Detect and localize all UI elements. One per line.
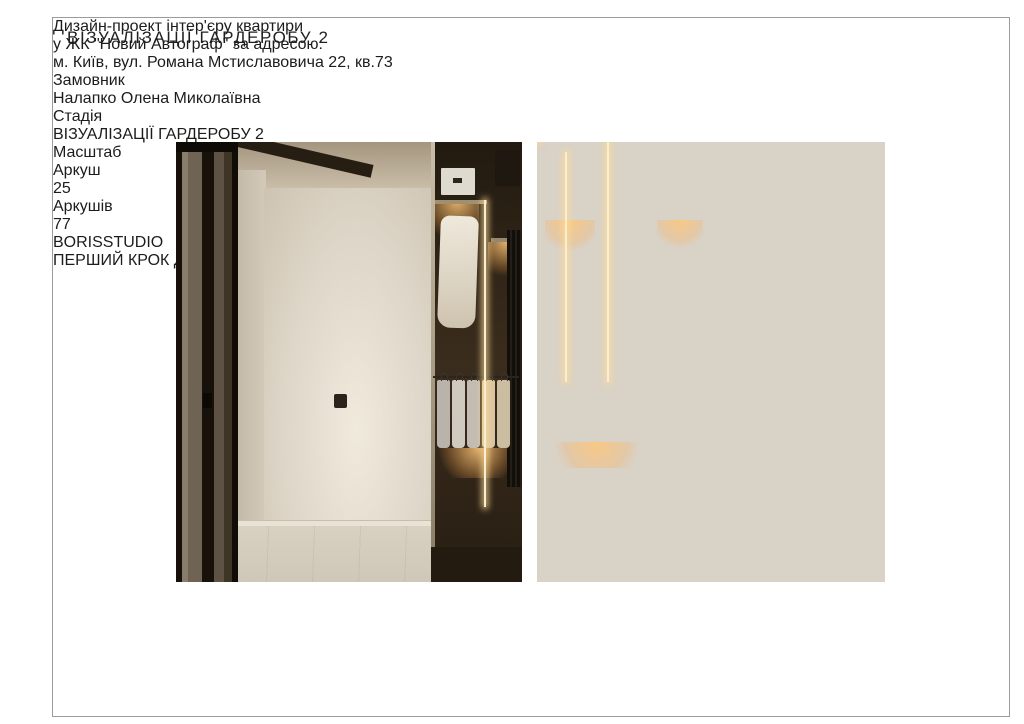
hanging-shirt — [497, 380, 510, 448]
side-wall — [238, 170, 266, 526]
shelf — [435, 200, 487, 204]
light-glow — [547, 442, 647, 468]
led-strip — [607, 142, 609, 382]
stage-cell: Стадія ВІЗУАЛІЗАЦІЇ ГАРДЕРОБУ 2 — [53, 108, 1009, 144]
render-wardrobe-hallway — [176, 142, 522, 582]
door-frame-top — [176, 142, 238, 152]
closet-shelving — [431, 142, 522, 547]
storage-box-white — [441, 168, 475, 195]
stage-header: Стадія — [53, 108, 1009, 126]
project-line: м. Київ, вул. Романа Мстиславовича 22, к… — [53, 54, 1009, 72]
ceiling — [537, 142, 885, 186]
hanging-shirt — [467, 380, 480, 448]
hanging-sweater — [437, 215, 479, 328]
led-strip — [565, 152, 567, 382]
render-wardrobe-interior — [537, 142, 885, 582]
light-glow — [545, 220, 595, 254]
light-switch — [334, 394, 347, 408]
hanging-shirt — [452, 380, 465, 448]
back-wall — [264, 188, 431, 524]
storage-box-dark — [495, 150, 520, 186]
customer-header: Замовник — [53, 72, 1009, 90]
customer-cell: Замовник Налапко Олена Миколаївна — [53, 72, 1009, 108]
light-glow — [657, 220, 703, 250]
door-handle — [203, 393, 212, 408]
hanging-shirt — [437, 380, 450, 448]
glass-door — [176, 142, 238, 582]
baseboard — [238, 520, 431, 526]
drawing-sheet: ВІЗУАЛІЗАЦІЇ ГАРДЕРОБУ 2 — [52, 17, 1010, 717]
cabinet-base — [431, 542, 522, 582]
led-strip — [484, 200, 486, 507]
page-title: ВІЗУАЛІЗАЦІЇ ГАРДЕРОБУ 2 — [67, 28, 330, 48]
hanging-dark-clothes — [507, 230, 522, 487]
customer-value: Налапко Олена Миколаївна — [53, 90, 1009, 108]
